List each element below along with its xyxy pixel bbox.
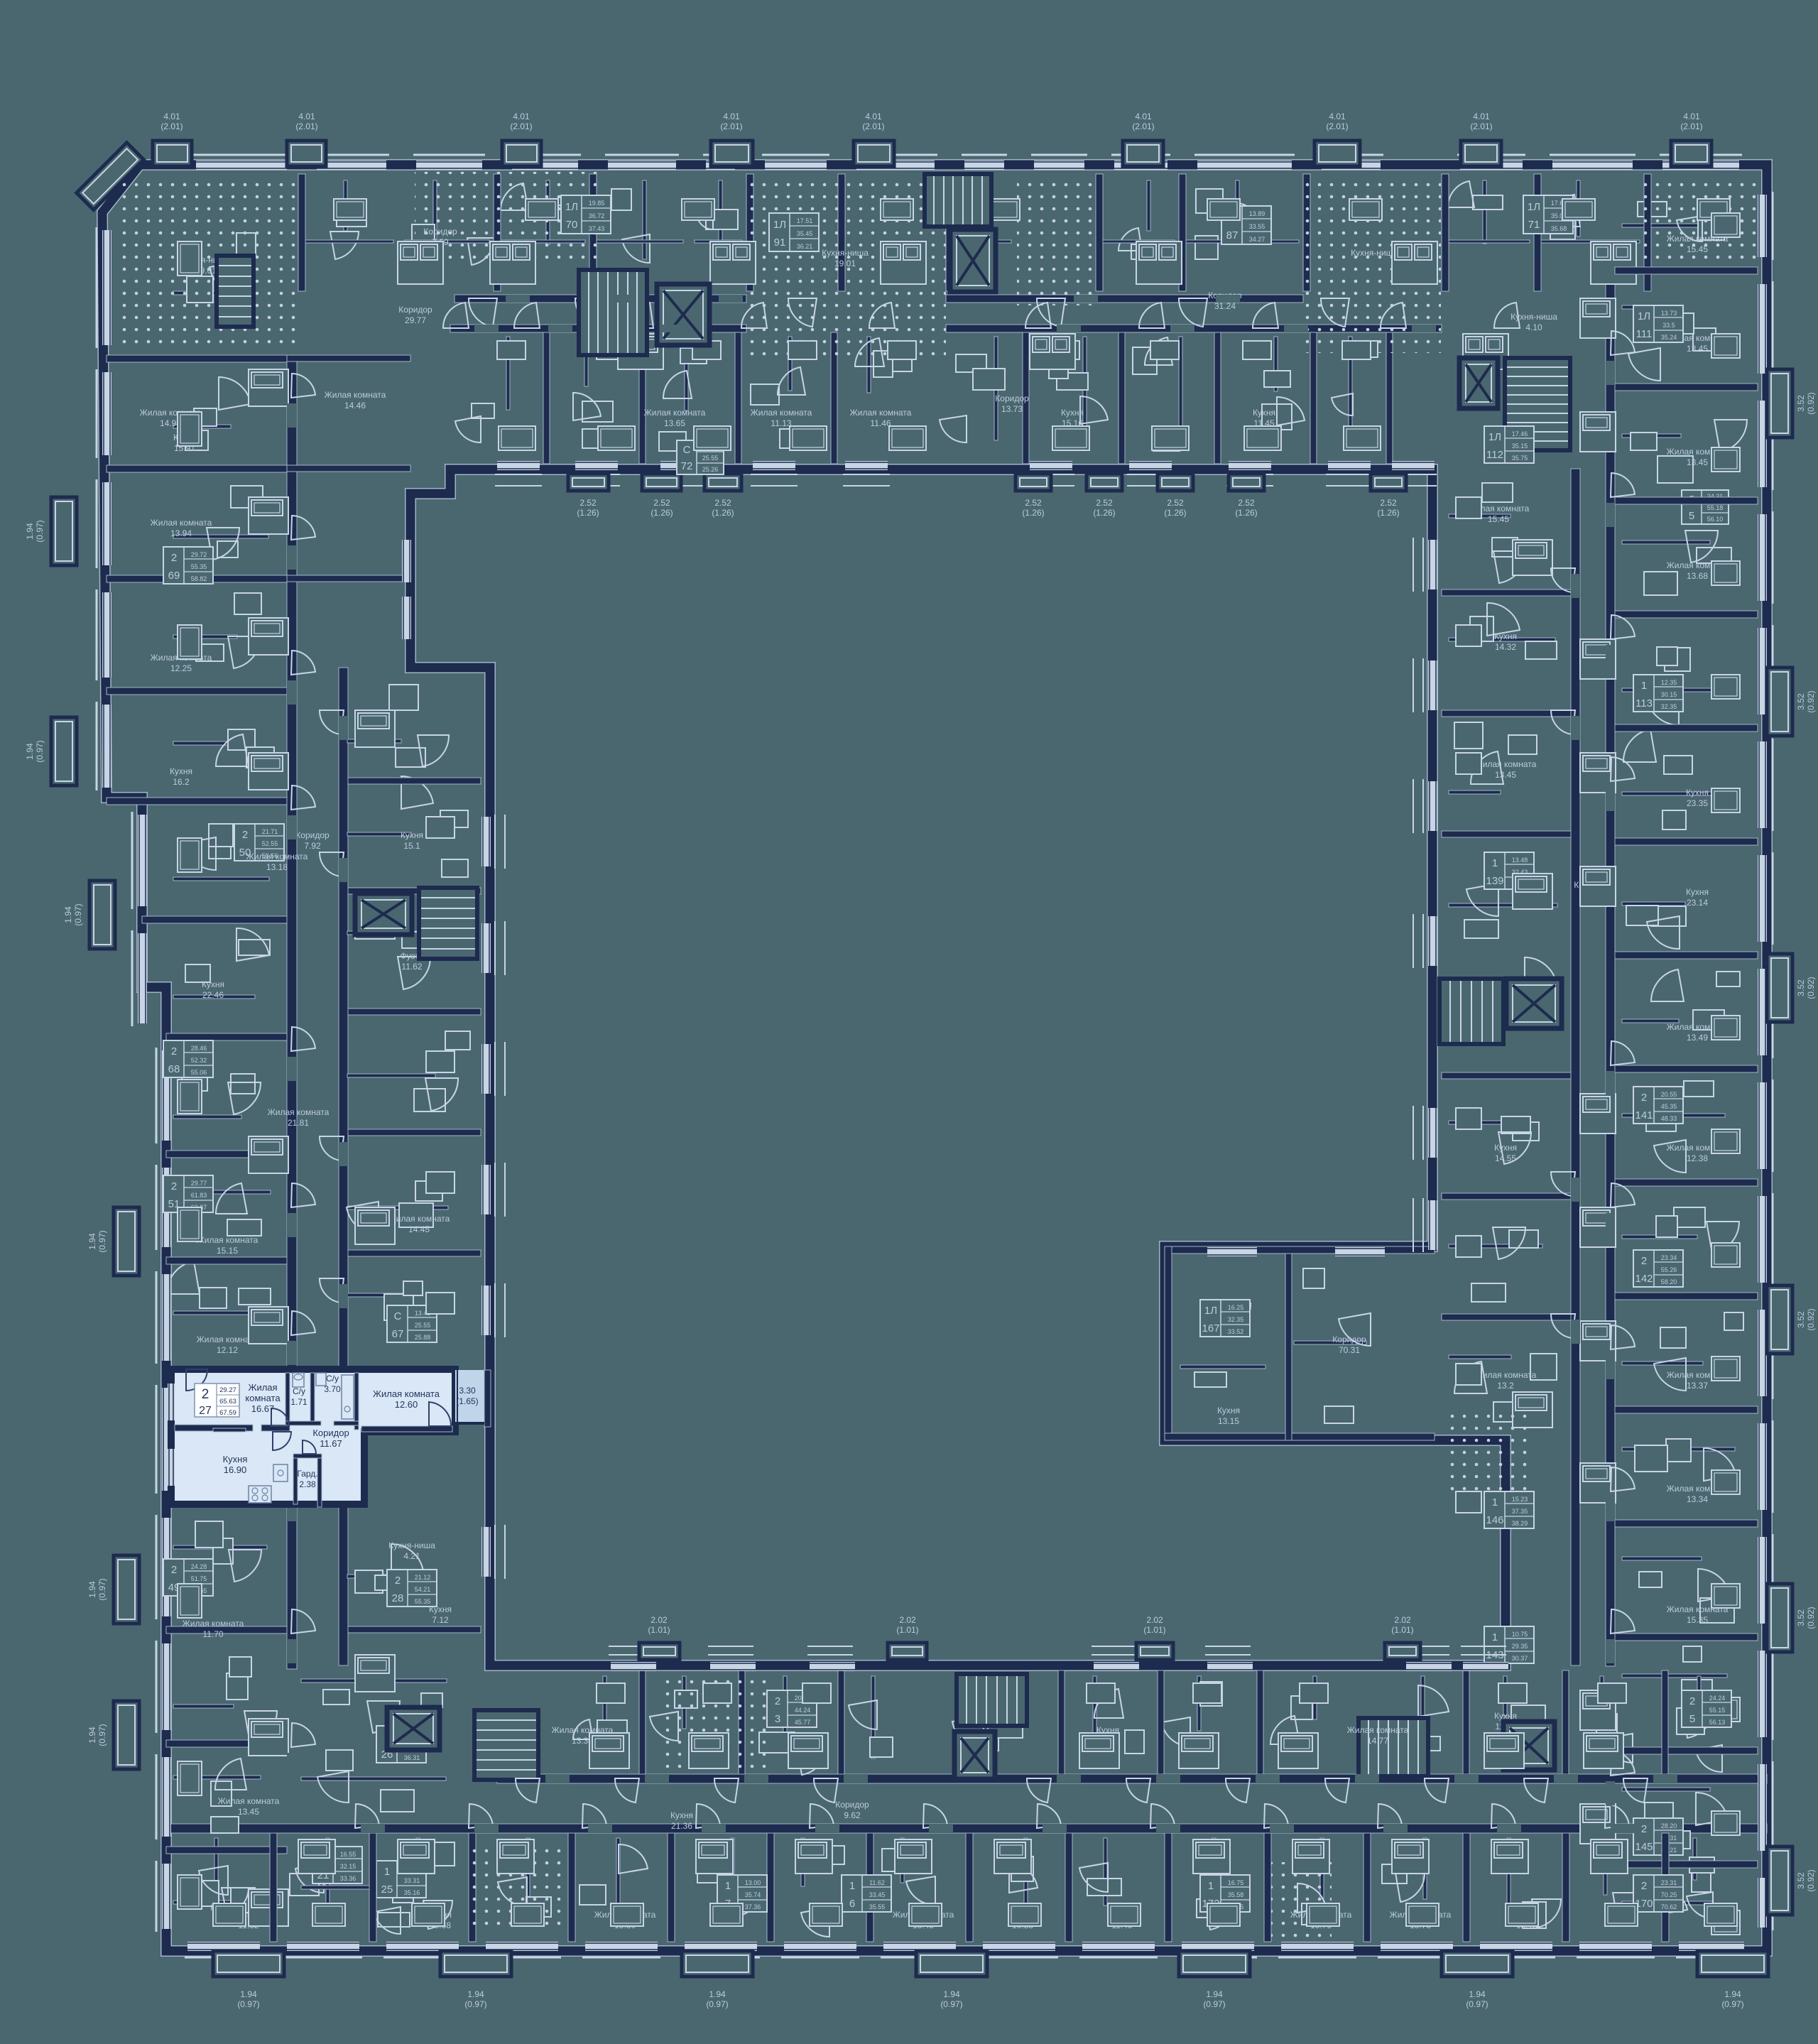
svg-text:Жилая комната: Жилая комната [325,390,386,400]
svg-text:2: 2 [1689,1695,1695,1707]
svg-text:36.31: 36.31 [404,1754,420,1761]
svg-text:15.15: 15.15 [217,1246,238,1256]
svg-text:13.73: 13.73 [1001,404,1023,414]
svg-text:11.13: 11.13 [771,418,791,428]
svg-text:1: 1 [849,1880,855,1892]
svg-text:33.52: 33.52 [1228,1328,1244,1335]
svg-text:13.45: 13.45 [238,1807,259,1817]
svg-text:11.46: 11.46 [870,418,891,428]
svg-text:70: 70 [566,219,578,231]
svg-text:7.12: 7.12 [432,1615,449,1625]
svg-text:2: 2 [171,1045,177,1058]
svg-text:2: 2 [171,552,177,564]
svg-text:13.89: 13.89 [1249,210,1265,217]
svg-text:13.34: 13.34 [1687,1494,1708,1504]
svg-text:29.72: 29.72 [191,551,207,558]
svg-text:Жилая комната: Жилая комната [183,1619,244,1629]
svg-text:13.68: 13.68 [1687,571,1708,581]
svg-text:23.35: 23.35 [1687,798,1708,808]
svg-text:2: 2 [242,829,248,841]
svg-text:3.52: 3.52 [1796,1872,1806,1889]
svg-text:(1.26): (1.26) [1022,508,1044,518]
svg-text:55.06: 55.06 [191,1069,207,1076]
svg-text:32.35: 32.35 [1661,703,1677,710]
svg-text:23.34: 23.34 [1661,1254,1677,1261]
svg-text:1.94: 1.94 [943,1989,960,1999]
svg-text:56.10: 56.10 [1707,516,1724,523]
svg-text:1.71: 1.71 [290,1397,307,1407]
svg-text:58.20: 58.20 [1661,1278,1677,1285]
svg-text:(1.26): (1.26) [1164,508,1186,518]
svg-text:30.37: 30.37 [1512,1655,1528,1662]
svg-text:24.28: 24.28 [191,1563,207,1570]
svg-text:13.45: 13.45 [1687,457,1708,467]
svg-text:33.31: 33.31 [404,1877,420,1884]
svg-text:4.01: 4.01 [513,112,530,121]
svg-text:142: 142 [1635,1273,1653,1285]
svg-text:Жилая комната: Жилая комната [1475,1370,1537,1380]
svg-text:4.01: 4.01 [298,112,315,121]
svg-text:145: 145 [1635,1841,1653,1853]
svg-text:2.52: 2.52 [1238,498,1255,508]
svg-text:9.62: 9.62 [844,1810,861,1820]
svg-text:44.24: 44.24 [795,1707,811,1714]
svg-text:7.92: 7.92 [304,841,321,851]
svg-text:(2.01): (2.01) [1326,121,1348,131]
svg-text:Кухня-ниша: Кухня-ниша [822,248,869,258]
svg-text:Кухня: Кухня [1061,408,1084,418]
svg-text:4.01: 4.01 [1683,112,1700,121]
svg-text:6: 6 [849,1898,855,1910]
svg-text:16.75: 16.75 [1228,1879,1244,1886]
svg-text:4.01: 4.01 [865,112,882,121]
svg-text:3: 3 [775,1713,780,1725]
svg-text:(0.97): (0.97) [35,520,45,542]
svg-text:35.45: 35.45 [797,230,813,237]
svg-text:52.55: 52.55 [262,840,278,847]
svg-text:35.75: 35.75 [1512,455,1528,462]
svg-text:70.25: 70.25 [1661,1891,1677,1898]
svg-text:21.81: 21.81 [288,1118,309,1128]
svg-text:3.52: 3.52 [1796,395,1806,412]
svg-text:1.94: 1.94 [709,1989,726,1999]
svg-text:(0.92): (0.92) [1806,1607,1816,1629]
svg-text:11.62: 11.62 [869,1879,885,1886]
svg-text:25: 25 [381,1883,393,1896]
svg-text:24.24: 24.24 [1709,1695,1726,1702]
svg-text:54.21: 54.21 [415,1586,431,1593]
svg-text:1: 1 [725,1880,731,1892]
svg-text:37.36: 37.36 [745,1903,761,1910]
svg-text:(1.01): (1.01) [1391,1625,1413,1635]
svg-text:Кухня: Кухня [1253,408,1275,418]
svg-text:2: 2 [171,1180,177,1192]
svg-text:Жилая комната: Жилая комната [850,408,912,418]
svg-text:3.30: 3.30 [459,1386,476,1396]
svg-text:1.94: 1.94 [25,523,35,540]
svg-text:Кухня: Кухня [670,1810,693,1820]
svg-text:17.51: 17.51 [797,217,813,224]
svg-text:15.45: 15.45 [1488,514,1509,524]
svg-text:3.52: 3.52 [1796,979,1806,996]
svg-text:70.62: 70.62 [1661,1903,1677,1910]
svg-text:4.01: 4.01 [1473,112,1490,121]
svg-text:Коридор: Коридор [295,830,330,840]
svg-text:1.94: 1.94 [87,1233,97,1250]
svg-text:4.01: 4.01 [723,112,740,121]
svg-text:2: 2 [202,1387,209,1402]
svg-text:14.45: 14.45 [408,1224,430,1234]
svg-text:Кухня: Кухня [1217,1406,1240,1415]
svg-text:1.94: 1.94 [87,1727,97,1744]
svg-text:25.26: 25.26 [702,466,719,473]
svg-text:1.94: 1.94 [240,1989,257,1999]
svg-text:32.35: 32.35 [1228,1316,1244,1323]
svg-text:2.52: 2.52 [1380,498,1397,508]
svg-text:67.59: 67.59 [219,1409,236,1417]
svg-text:(0.97): (0.97) [97,1578,107,1600]
svg-text:1.94: 1.94 [1206,1989,1223,1999]
svg-text:(2.01): (2.01) [510,121,532,131]
svg-text:3.70: 3.70 [324,1384,341,1394]
svg-text:(0.92): (0.92) [1806,690,1816,712]
svg-text:16.67: 16.67 [251,1403,275,1414]
svg-text:Кухня: Кухня [170,766,192,776]
svg-text:17.46: 17.46 [1512,430,1528,437]
svg-text:29.77: 29.77 [191,1180,207,1187]
svg-text:(2.01): (2.01) [1132,121,1154,131]
svg-text:35.58: 35.58 [1228,1891,1244,1898]
svg-text:С: С [394,1310,402,1322]
svg-text:48.33: 48.33 [1661,1115,1677,1122]
svg-text:(2.01): (2.01) [160,121,183,131]
svg-text:37.35: 37.35 [1512,1508,1528,1515]
svg-text:20.55: 20.55 [1661,1091,1677,1098]
svg-text:1: 1 [1492,857,1498,869]
svg-text:Жилая комната: Жилая комната [751,408,812,418]
svg-text:(0.97): (0.97) [97,1724,107,1746]
svg-text:Жилая: Жилая [248,1382,277,1393]
svg-text:(0.92): (0.92) [1806,1308,1816,1330]
svg-text:25.55: 25.55 [415,1322,431,1329]
svg-text:4.01: 4.01 [163,112,180,121]
svg-text:4.21: 4.21 [403,1551,420,1561]
svg-text:14.46: 14.46 [344,401,366,411]
svg-text:55.18: 55.18 [1707,504,1724,511]
svg-text:Кухня-ниша: Кухня-ниша [1351,248,1398,258]
svg-text:13.2: 13.2 [1497,1381,1514,1391]
svg-text:11.70: 11.70 [202,1629,223,1639]
svg-text:55.35: 55.35 [191,563,207,570]
svg-text:(0.97): (0.97) [464,1999,486,2009]
svg-text:(1.01): (1.01) [648,1625,670,1635]
svg-text:Кухня: Кухня [1494,1143,1517,1153]
svg-text:16.25: 16.25 [1228,1304,1244,1311]
svg-text:13.45: 13.45 [1687,344,1708,354]
svg-text:1.94: 1.94 [467,1989,484,1999]
svg-text:12.38: 12.38 [1687,1153,1708,1163]
svg-text:3.52: 3.52 [1796,1609,1806,1626]
svg-text:2.02: 2.02 [899,1615,916,1625]
svg-text:2.52: 2.52 [1167,498,1184,508]
svg-text:13.49: 13.49 [1687,1033,1708,1043]
svg-text:13.73: 13.73 [1661,310,1677,317]
svg-text:91: 91 [774,237,786,249]
svg-text:31.24: 31.24 [1214,301,1236,311]
svg-text:35.15: 35.15 [1512,442,1528,450]
svg-text:2: 2 [1641,1880,1647,1892]
svg-text:(0.97): (0.97) [73,903,83,925]
svg-text:33.5: 33.5 [1662,322,1675,329]
svg-text:21.36: 21.36 [671,1821,692,1831]
svg-text:1.94: 1.94 [87,1581,97,1598]
svg-text:1.94: 1.94 [63,906,73,923]
svg-text:146: 146 [1486,1514,1503,1526]
svg-text:Жилая комната: Жилая комната [644,408,706,418]
svg-text:2: 2 [395,1575,401,1587]
svg-text:15.1: 15.1 [403,841,420,851]
svg-text:29.35: 29.35 [1512,1643,1528,1650]
svg-text:1Л: 1Л [773,219,786,231]
svg-text:58.82: 58.82 [191,575,207,582]
svg-text:65.63: 65.63 [219,1398,236,1406]
svg-text:111: 111 [1636,328,1653,340]
svg-text:Коридор: Коридор [835,1800,869,1810]
svg-text:5: 5 [1689,510,1694,522]
svg-text:11.67: 11.67 [320,1438,342,1449]
svg-text:Кухня-ниша: Кухня-ниша [388,1540,435,1550]
svg-text:2.02: 2.02 [1394,1615,1411,1625]
svg-text:61.83: 61.83 [191,1192,207,1199]
svg-text:Кухня: Кухня [1686,887,1709,897]
svg-text:36.72: 36.72 [589,212,605,219]
svg-text:55.15: 55.15 [1709,1707,1726,1714]
svg-text:29.77: 29.77 [405,315,426,325]
svg-text:71: 71 [1528,219,1540,231]
svg-text:23.14: 23.14 [1687,898,1708,908]
svg-text:70.31: 70.31 [1339,1345,1360,1355]
svg-text:1: 1 [1641,680,1647,692]
svg-text:69: 69 [168,570,180,582]
svg-text:Коридор: Коридор [398,305,432,315]
svg-text:13.65: 13.65 [664,418,685,428]
svg-text:33.55: 33.55 [1249,223,1265,230]
svg-text:Жилая комната: Жилая комната [151,518,212,528]
svg-text:13.15: 13.15 [1218,1416,1239,1426]
svg-text:28: 28 [392,1592,404,1604]
svg-text:38.29: 38.29 [1512,1520,1528,1527]
svg-text:16.2: 16.2 [173,777,190,787]
svg-text:19.01: 19.01 [834,259,856,268]
svg-text:29.27: 29.27 [219,1386,236,1394]
svg-text:(1.26): (1.26) [1377,508,1399,518]
svg-text:28.20: 28.20 [1661,1822,1677,1830]
svg-text:1Л: 1Л [565,201,578,213]
svg-text:1: 1 [384,1866,390,1878]
svg-text:Жилая комната: Жилая комната [246,852,308,861]
svg-text:(0.92): (0.92) [1806,392,1816,414]
svg-text:139: 139 [1486,875,1503,887]
svg-text:С/у: С/у [326,1374,339,1383]
svg-text:(1.26): (1.26) [1235,508,1257,518]
svg-text:25.55: 25.55 [702,455,719,462]
svg-text:(1.65): (1.65) [456,1396,478,1406]
svg-text:С/у: С/у [293,1386,305,1396]
svg-text:1: 1 [1492,1496,1498,1508]
svg-text:33.45: 33.45 [869,1891,886,1898]
svg-text:35.16: 35.16 [404,1889,420,1896]
svg-text:2.52: 2.52 [714,498,731,508]
svg-text:Коридор: Коридор [312,1428,349,1438]
svg-text:(0.97): (0.97) [237,1999,259,2009]
svg-text:19.85: 19.85 [589,200,605,207]
svg-text:15.23: 15.23 [1512,1496,1528,1503]
svg-text:2.02: 2.02 [1146,1615,1163,1625]
svg-text:(2.01): (2.01) [1680,121,1702,131]
svg-text:Жилая комната: Жилая комната [218,1796,280,1806]
svg-text:87: 87 [1226,229,1239,241]
svg-text:55.26: 55.26 [1661,1266,1677,1273]
svg-text:3.52: 3.52 [1796,1311,1806,1328]
svg-text:13.94: 13.94 [170,528,192,538]
svg-text:2: 2 [775,1695,780,1707]
svg-text:15.45: 15.45 [1687,244,1708,254]
svg-text:12.35: 12.35 [1661,679,1677,686]
svg-text:2.52: 2.52 [653,498,670,508]
svg-text:167: 167 [1202,1322,1219,1334]
svg-text:14.55: 14.55 [1495,1153,1516,1163]
svg-text:45.35: 45.35 [1661,1103,1677,1110]
svg-text:2.52: 2.52 [1096,498,1113,508]
svg-text:(0.97): (0.97) [706,1999,728,2009]
svg-text:35.55: 35.55 [869,1903,886,1910]
svg-text:4.01: 4.01 [1329,112,1346,121]
svg-text:25.88: 25.88 [415,1334,431,1341]
svg-text:Жилая комната: Жилая комната [1475,759,1537,769]
svg-text:23.31: 23.31 [1661,1879,1677,1886]
svg-text:36.21: 36.21 [797,243,813,250]
svg-text:12.60: 12.60 [395,1399,418,1410]
svg-text:Коридор: Коридор [423,227,457,237]
svg-text:112: 112 [1486,449,1503,461]
svg-text:1Л: 1Л [1638,310,1650,322]
svg-text:45.77: 45.77 [795,1719,811,1726]
svg-text:(2.01): (2.01) [295,121,317,131]
svg-text:Жилая комната: Жилая комната [388,1214,450,1224]
svg-text:(0.97): (0.97) [35,740,45,762]
svg-text:141: 141 [1635,1109,1653,1121]
svg-text:(2.01): (2.01) [862,121,884,131]
svg-text:13.37: 13.37 [1687,1381,1708,1391]
svg-text:Кухня-ниша: Кухня-ниша [1511,312,1557,322]
svg-text:21.12: 21.12 [415,1574,431,1581]
svg-text:28.46: 28.46 [191,1045,207,1052]
svg-text:Кухня: Кухня [223,1454,248,1464]
svg-text:2.02: 2.02 [651,1615,668,1625]
svg-text:(2.01): (2.01) [720,121,742,131]
svg-text:37.43: 37.43 [589,225,605,232]
svg-text:67: 67 [392,1328,404,1340]
svg-text:51.75: 51.75 [191,1575,207,1582]
svg-text:30.15: 30.15 [1661,691,1677,698]
svg-text:10.75: 10.75 [1512,1631,1528,1638]
svg-text:(1.01): (1.01) [896,1625,918,1635]
svg-text:35.68: 35.68 [1551,225,1567,232]
svg-text:4.10: 4.10 [1525,322,1542,332]
svg-text:15.35: 15.35 [1687,1615,1708,1625]
svg-text:Кухня: Кухня [429,1604,452,1614]
svg-text:4.01: 4.01 [1135,112,1152,121]
svg-text:5: 5 [1689,1713,1695,1725]
svg-text:Кухня: Кухня [202,979,224,989]
svg-text:1: 1 [1208,1880,1214,1892]
svg-text:14.77: 14.77 [1367,1736,1388,1746]
svg-text:(0.97): (0.97) [940,1999,962,2009]
svg-text:1.94: 1.94 [1469,1989,1486,1999]
svg-text:(0.97): (0.97) [1721,1999,1743,2009]
svg-text:(1.26): (1.26) [577,508,599,518]
svg-text:Жилая комната: Жилая комната [197,1235,258,1245]
svg-text:(1.26): (1.26) [651,508,673,518]
svg-text:(1.26): (1.26) [1093,508,1115,518]
svg-text:16.55: 16.55 [340,1851,356,1858]
svg-text:12.25: 12.25 [170,663,192,673]
svg-text:(0.92): (0.92) [1806,977,1816,999]
svg-text:2: 2 [1641,1823,1647,1835]
svg-text:35.24: 35.24 [1661,334,1677,341]
svg-text:Коридор: Коридор [995,393,1029,403]
svg-text:55.35: 55.35 [415,1598,431,1605]
svg-text:2: 2 [1641,1255,1647,1267]
svg-text:27: 27 [199,1405,212,1417]
svg-text:1Л: 1Л [1488,431,1501,443]
svg-text:1.94: 1.94 [25,743,35,760]
svg-text:1Л: 1Л [1528,201,1540,213]
svg-text:(2.01): (2.01) [1470,121,1492,131]
svg-text:2: 2 [1641,1092,1647,1104]
svg-text:Жилая комната: Жилая комната [268,1107,330,1117]
svg-text:1: 1 [1492,1631,1498,1643]
svg-text:1Л: 1Л [1204,1305,1217,1317]
svg-text:(0.97): (0.97) [1466,1999,1488,2009]
svg-text:1.94: 1.94 [1724,1989,1741,1999]
svg-text:комната: комната [245,1393,281,1403]
svg-text:2.52: 2.52 [579,498,597,508]
svg-text:Гард.: Гард. [297,1469,317,1479]
svg-text:34.27: 34.27 [1249,236,1265,243]
svg-text:52.32: 52.32 [191,1057,207,1064]
svg-text:13.45: 13.45 [1495,770,1516,780]
svg-text:21.71: 21.71 [262,828,278,835]
svg-text:2.52: 2.52 [1025,498,1042,508]
svg-text:Кухня: Кухня [1494,631,1517,641]
svg-text:13.00: 13.00 [745,1879,761,1886]
svg-text:68: 68 [168,1063,180,1075]
svg-text:35.74: 35.74 [745,1891,761,1898]
svg-text:33.36: 33.36 [340,1875,356,1882]
svg-text:(0.92): (0.92) [1806,1869,1816,1891]
svg-text:12.12: 12.12 [217,1345,238,1355]
svg-text:Коридор: Коридор [1332,1334,1366,1344]
svg-text:22.46: 22.46 [202,990,224,1000]
svg-text:113: 113 [1635,697,1653,710]
svg-text:11.62: 11.62 [401,962,422,972]
svg-text:С: С [683,444,691,456]
svg-text:Кухня: Кухня [401,830,423,840]
svg-text:Жилая комната: Жилая комната [1347,1725,1409,1735]
svg-text:56.13: 56.13 [1709,1719,1726,1726]
svg-text:(1.01): (1.01) [1143,1625,1165,1635]
